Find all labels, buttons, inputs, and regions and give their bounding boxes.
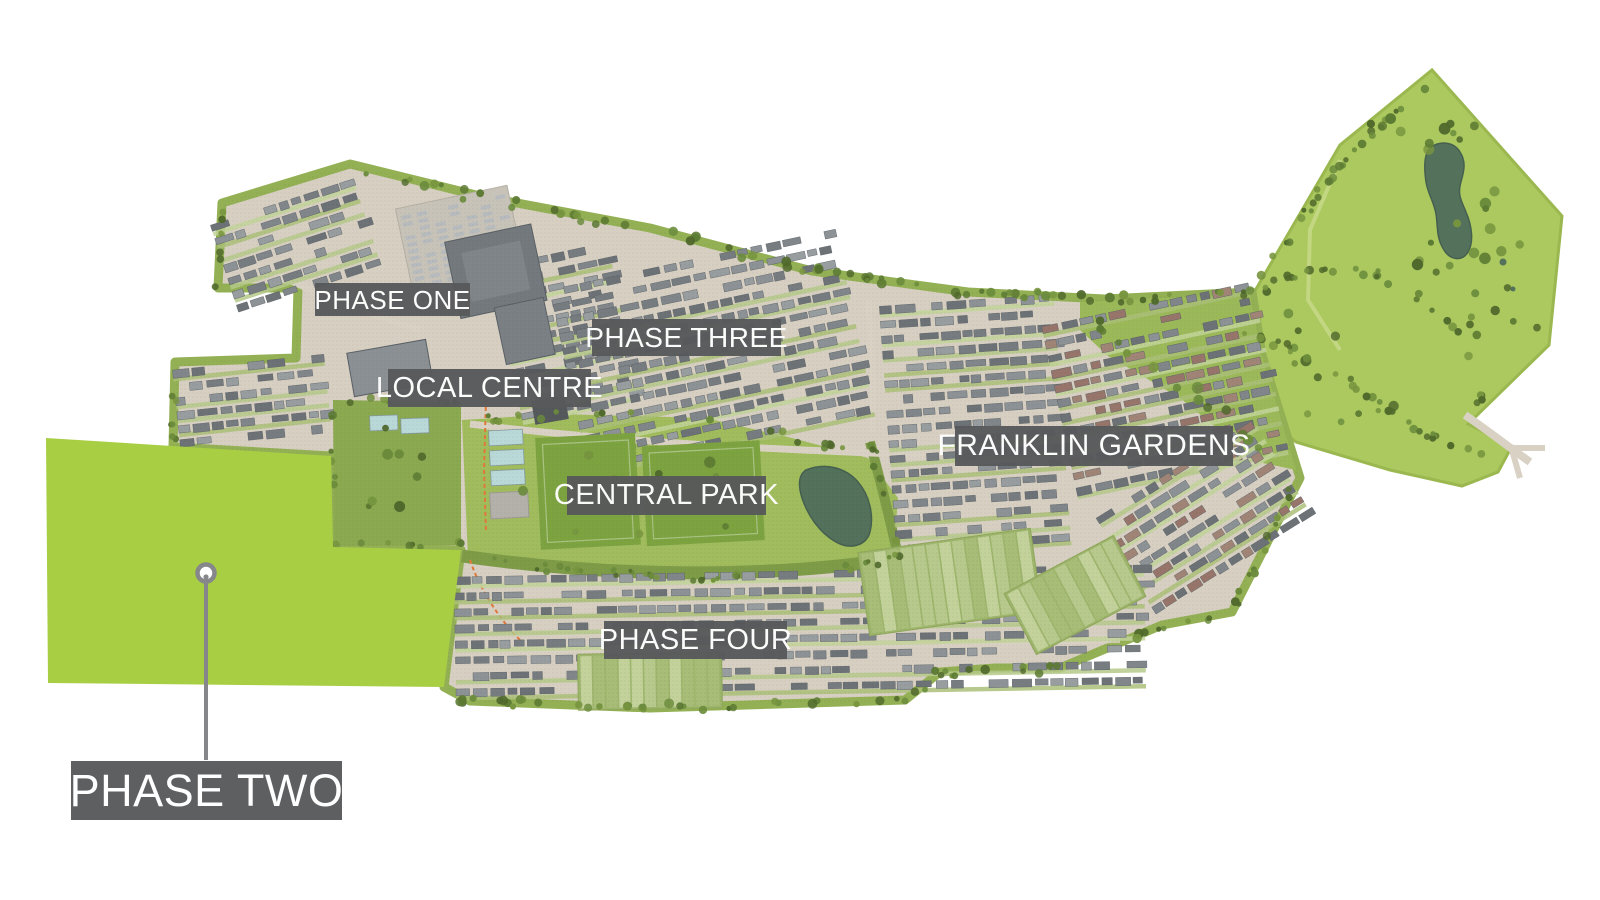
label-central-park[interactable]: CENTRAL PARK [567, 476, 766, 515]
masterplan-canvas: PHASE ONE PHASE THREE LOCAL CENTRE CENTR… [0, 0, 1600, 900]
label-phase-two[interactable]: PHASE TWO [71, 761, 342, 820]
label-franklin-gardens[interactable]: FRANKLIN GARDENS [955, 426, 1233, 466]
label-phase-four[interactable]: PHASE FOUR [604, 621, 787, 659]
label-local-centre[interactable]: LOCAL CENTRE [388, 369, 591, 407]
label-phase-three[interactable]: PHASE THREE [592, 319, 781, 356]
label-phase-one[interactable]: PHASE ONE [315, 283, 470, 316]
